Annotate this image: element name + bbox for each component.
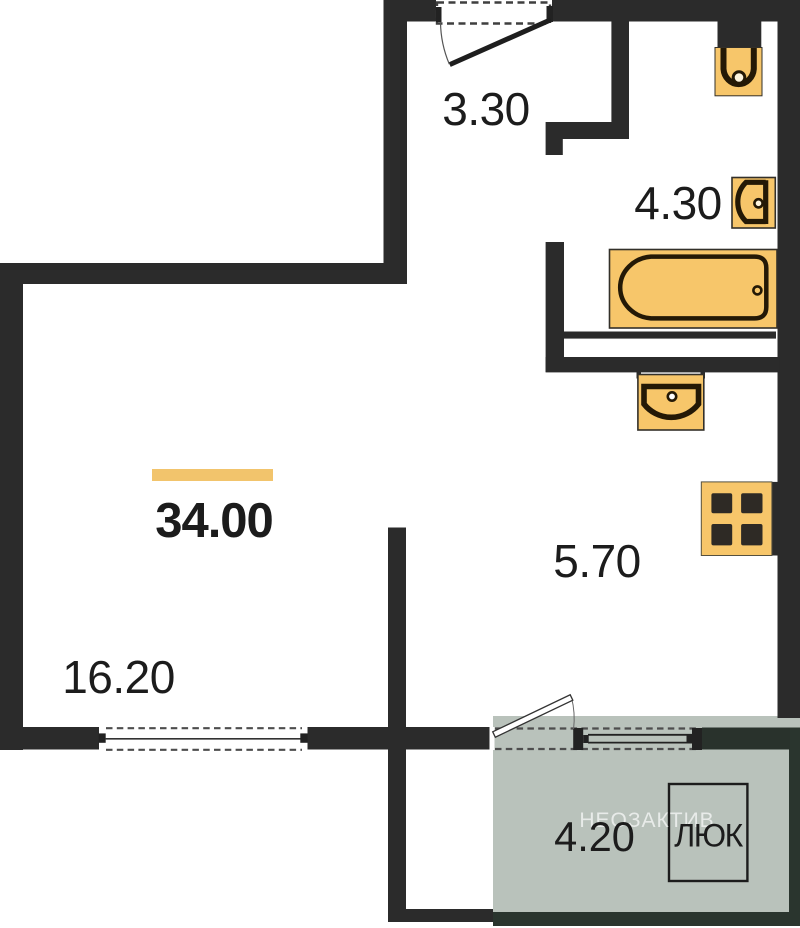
svg-text:3.30: 3.30 [442, 83, 530, 135]
svg-text:34.00: 34.00 [155, 494, 273, 548]
svg-text:16.20: 16.20 [62, 651, 175, 703]
svg-text:4.30: 4.30 [634, 177, 722, 229]
svg-text:ЛЮК: ЛЮК [674, 818, 743, 854]
svg-text:5.70: 5.70 [553, 535, 641, 587]
svg-text:4.20: 4.20 [554, 813, 635, 860]
